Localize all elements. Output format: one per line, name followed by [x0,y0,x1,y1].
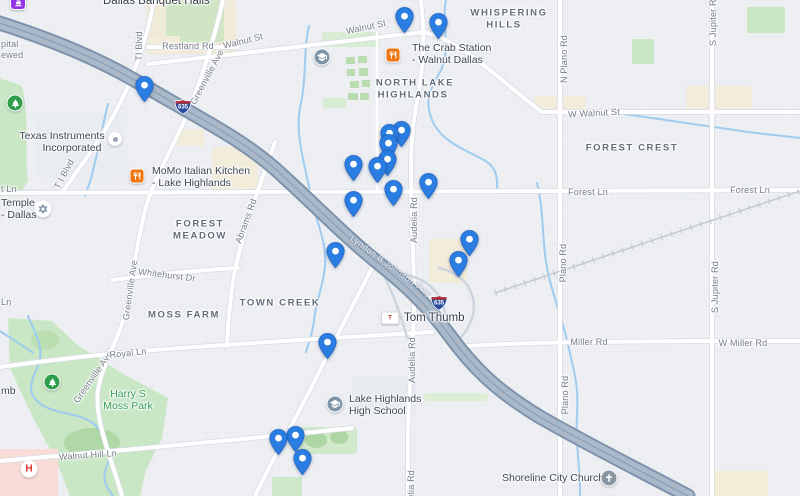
map-pin[interactable] [384,180,403,207]
interstate-635-shield: 635 [175,100,192,115]
map-pin[interactable] [429,13,448,40]
school-icon[interactable] [314,49,331,66]
map-pin[interactable] [269,429,288,456]
map-pin[interactable] [395,7,414,34]
school-icon[interactable] [327,396,344,413]
banquet-icon[interactable] [10,0,26,10]
temple-icon[interactable] [35,201,52,218]
dot-icon[interactable] [108,132,122,146]
map-base-layer [0,0,800,496]
interstate-635-shield: 635 [431,296,448,311]
map-pin[interactable] [326,242,345,269]
map-canvas[interactable]: Restland RdWalnut StWalnut StW Walnut St… [0,0,800,496]
park-icon[interactable] [44,374,61,391]
map-pin[interactable] [419,173,438,200]
map-pin[interactable] [293,449,312,476]
hospital-icon[interactable]: H [21,461,38,478]
map-pin[interactable] [135,76,154,103]
church-icon[interactable] [601,470,618,487]
tomthumb-icon[interactable]: T [381,312,399,325]
map-pin[interactable] [449,251,468,278]
map-pin[interactable] [344,191,363,218]
park-icon[interactable] [7,95,24,112]
restaurant-icon[interactable] [130,169,145,184]
map-pin[interactable] [318,333,337,360]
restaurant-icon[interactable] [386,48,401,63]
map-pin[interactable] [344,155,363,182]
